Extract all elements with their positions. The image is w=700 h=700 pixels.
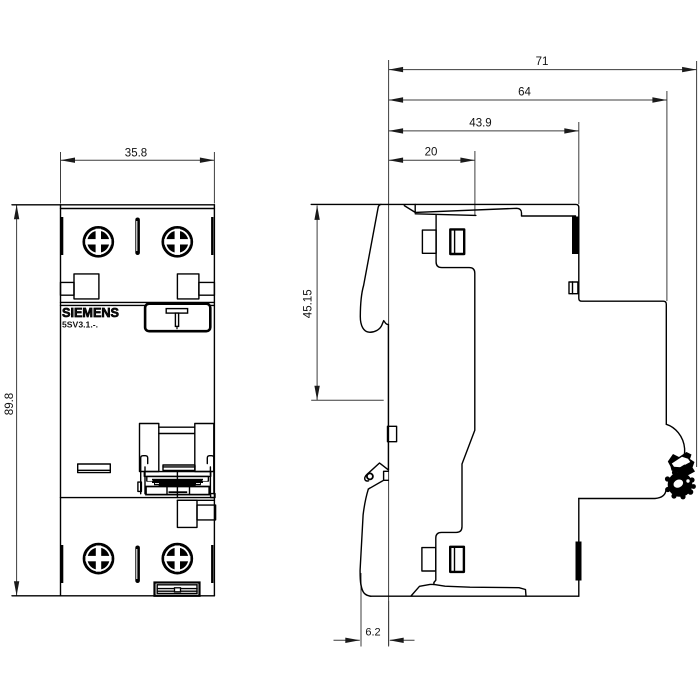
svg-text:89.8: 89.8 <box>4 393 16 415</box>
svg-text:20: 20 <box>425 147 438 159</box>
svg-text:SIEMENS: SIEMENS <box>62 305 119 320</box>
svg-text:5SV3.1.-.: 5SV3.1.-. <box>62 321 98 330</box>
svg-text:35.8: 35.8 <box>125 148 147 160</box>
svg-text:43.9: 43.9 <box>469 117 491 129</box>
svg-text:71: 71 <box>536 56 549 68</box>
svg-text:45.15: 45.15 <box>303 289 315 318</box>
svg-text:64: 64 <box>518 86 531 98</box>
svg-text:6.2: 6.2 <box>365 627 380 639</box>
